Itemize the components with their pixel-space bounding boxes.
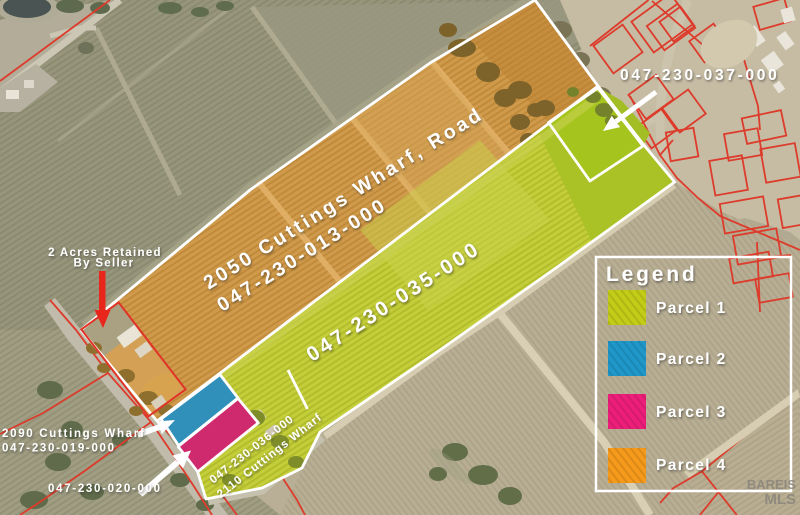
svg-text:Parcel 2: Parcel 2 [656,351,727,368]
svg-text:Parcel 1: Parcel 1 [656,300,727,317]
svg-text:Parcel 3: Parcel 3 [656,404,727,421]
svg-text:BAREIS: BAREIS [747,477,796,492]
svg-text:By Seller: By Seller [74,258,135,270]
svg-text:MLS: MLS [764,491,796,508]
svg-text:2090 Cuttings Wharf: 2090 Cuttings Wharf [2,428,145,440]
svg-text:047-230-020-000: 047-230-020-000 [48,483,162,495]
svg-text:047-230-019-000: 047-230-019-000 [2,443,116,455]
svg-text:Parcel 4: Parcel 4 [656,457,727,474]
svg-text:Legend: Legend [606,263,697,286]
svg-text:047-230-037-000: 047-230-037-000 [620,67,779,84]
